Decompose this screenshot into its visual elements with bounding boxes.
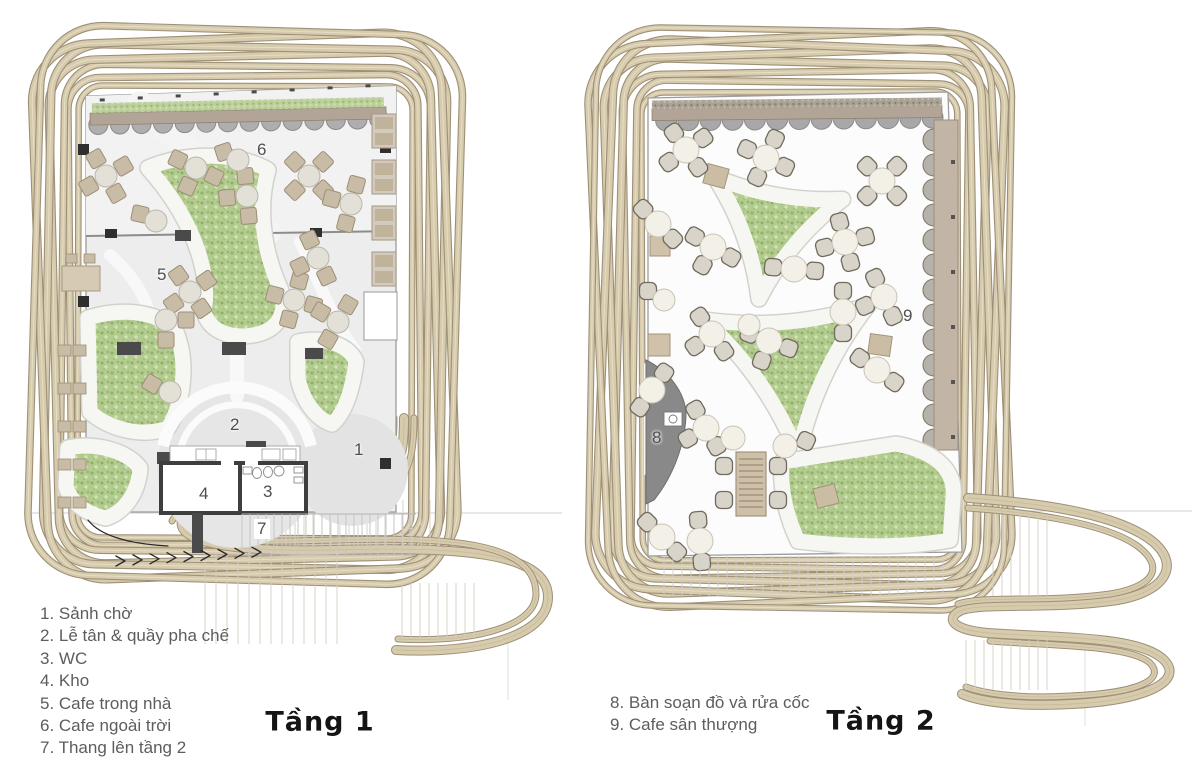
room-marker-4: 4 bbox=[199, 484, 209, 504]
room-marker-5: 5 bbox=[157, 265, 167, 285]
legend-item: 1. Sảnh chờ bbox=[40, 603, 229, 625]
room-marker-8: 8 bbox=[652, 428, 662, 448]
room-marker-7: 7 bbox=[254, 519, 270, 539]
interior-plan bbox=[58, 84, 408, 553]
legend-item: 8. Bàn soạn đồ và rửa cốc bbox=[610, 692, 809, 714]
legend-item: 9. Cafe sân thượng bbox=[610, 714, 809, 736]
legend-item: 4. Kho bbox=[40, 670, 229, 692]
room-marker-3: 3 bbox=[263, 482, 273, 502]
legend-item: 3. WC bbox=[40, 648, 229, 670]
room-marker-1: 1 bbox=[354, 440, 364, 460]
rooftop-plan bbox=[628, 92, 962, 571]
plan-title-tang-2: Tầng 2 bbox=[826, 706, 935, 737]
presentation-board: 1 2 3 4 5 6 7 8 9 1. Sảnh chờ 2. Lễ tân … bbox=[0, 0, 1200, 783]
room-marker-6: 6 bbox=[257, 140, 267, 160]
legend-item: 5. Cafe trong nhà bbox=[40, 693, 229, 715]
legend-item: 2. Lễ tân & quầy pha chế bbox=[40, 625, 229, 647]
legend-floor-1: 1. Sảnh chờ 2. Lễ tân & quầy pha chế 3. … bbox=[40, 603, 229, 760]
floor-plan-tang-2 bbox=[585, 26, 1192, 726]
room-marker-2: 2 bbox=[230, 415, 240, 435]
legend-item: 7. Thang lên tầng 2 bbox=[40, 737, 229, 759]
legend-item: 6. Cafe ngoài trời bbox=[40, 715, 229, 737]
room-marker-9: 9 bbox=[903, 306, 913, 326]
plan-title-tang-1: Tầng 1 bbox=[265, 707, 374, 738]
floor-plan-tang-1 bbox=[26, 24, 562, 700]
legend-floor-2: 8. Bàn soạn đồ và rửa cốc 9. Cafe sân th… bbox=[610, 692, 809, 737]
